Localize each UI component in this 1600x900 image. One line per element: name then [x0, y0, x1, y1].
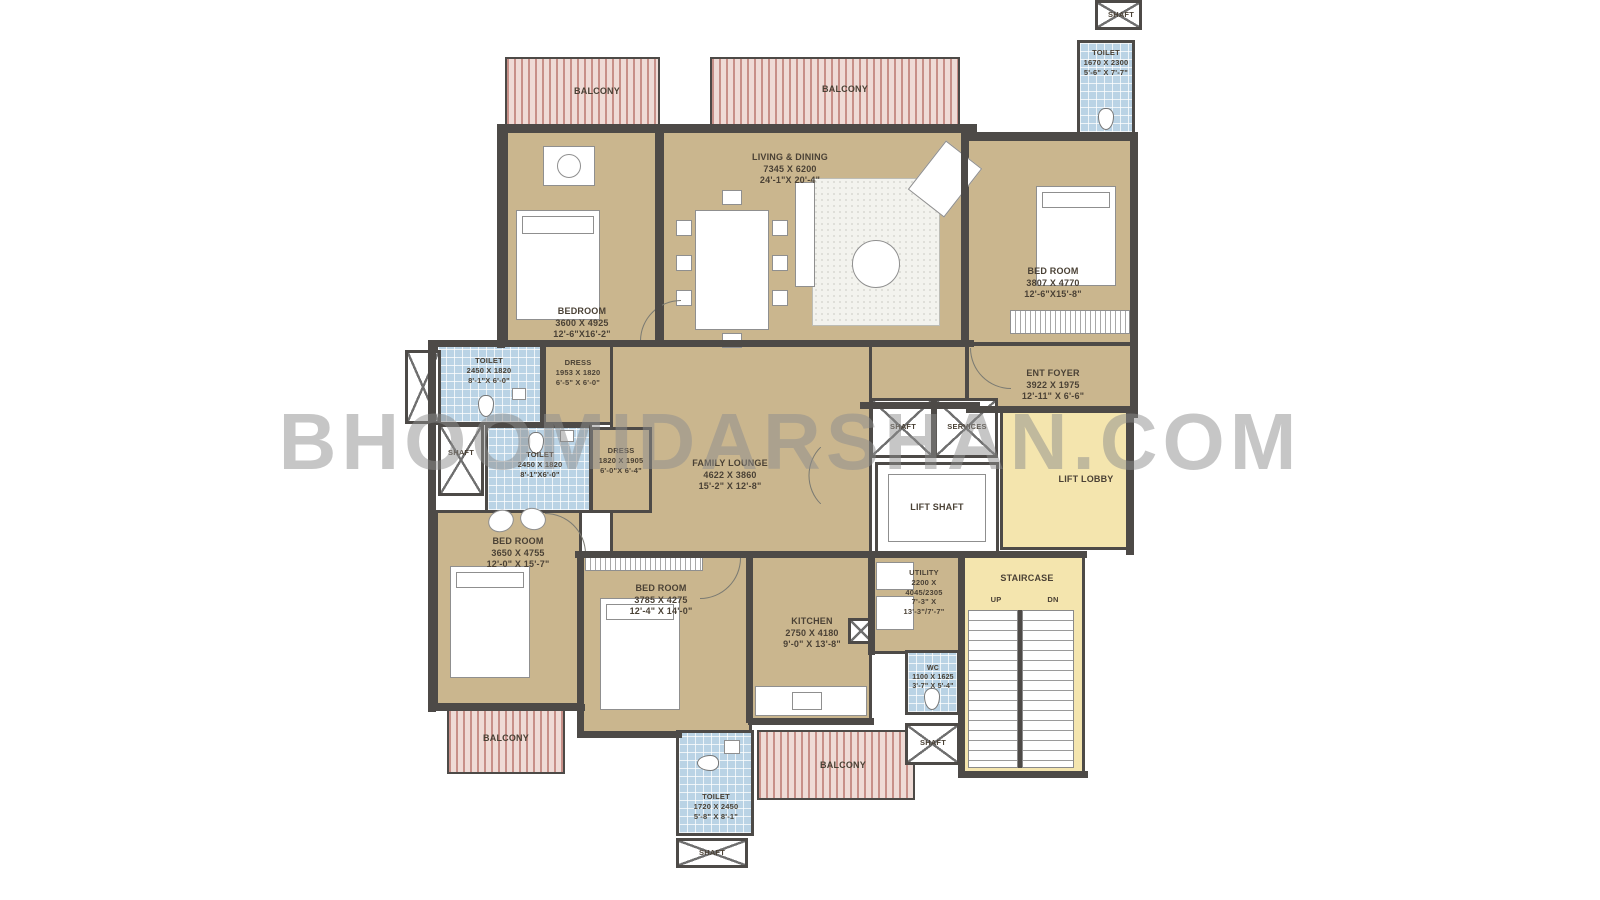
room-name: UTILITY: [903, 568, 944, 578]
services-label-text: SERVICES: [947, 422, 986, 431]
washbasin-icon: [560, 430, 574, 442]
washbasin-icon: [512, 388, 526, 400]
room-dim-ft: 15'-2" X 12'-8": [692, 481, 768, 493]
wall-segment: [655, 130, 662, 343]
room-name: BED ROOM: [1024, 266, 1081, 278]
wall-segment: [497, 124, 505, 348]
wall-segment: [961, 130, 968, 345]
room-dim-mm: 2750 X 4180: [783, 628, 841, 640]
room-dim: 2200 X: [903, 578, 944, 588]
wardrobe-icon: [585, 557, 703, 571]
wall-segment: [497, 124, 977, 132]
bedroom-bm-label: BED ROOM 3785 X 4275 12'-4" X 14'-0": [630, 583, 693, 618]
wall-segment: [428, 340, 974, 347]
toilet-l2-label: TOILET 2450 X 1820 8'-1"X6'-0": [518, 450, 563, 479]
wall-segment: [746, 555, 753, 723]
chair-icon: [772, 255, 788, 271]
room-dim-ft: 6'-0"X 6'-4": [599, 466, 644, 476]
shaft-label: SHAFT: [890, 422, 916, 432]
room-name: TOILET: [467, 356, 512, 366]
room-name: BED ROOM: [630, 583, 693, 595]
shaft-label: SHAFT: [920, 738, 946, 748]
floor-plan: BALCONY BALCONY BALCONY BALCONY TOILET 1…: [0, 0, 1600, 900]
room-dim-ft: 12'-0" X 15'-7": [487, 559, 550, 571]
room-name: FAMILY LOUNGE: [692, 458, 768, 470]
coffee-table-icon: [852, 240, 900, 288]
room-dim-mm: 2450 X 1820: [467, 366, 512, 376]
toilet-b-label: TOILET 1720 X 2450 5'-8" X 8'-1": [694, 792, 739, 821]
stair-divider: [1018, 610, 1022, 768]
room-name: TOILET: [518, 450, 563, 460]
room-name: KITCHEN: [783, 616, 841, 628]
staircase-label: STAIRCASE: [1000, 573, 1053, 585]
room-dim: 7'-3" X: [903, 597, 944, 607]
balcony-label: BALCONY: [483, 733, 529, 745]
ent-foyer-label: ENT FOYER 3922 X 1975 12'-11" X 6'-6": [1022, 368, 1084, 403]
balcony-label: BALCONY: [574, 86, 620, 98]
dress-1-label: DRESS 1953 X 1820 6'-5" X 6'-0": [556, 358, 601, 387]
wc-label: WC 1100 X 1625 3'-7" X 5'-4": [912, 664, 954, 691]
bedroom-tr-label: BED ROOM 3807 X 4770 12'-6"X15'-8": [1024, 266, 1081, 301]
staircase-label-text: STAIRCASE: [1000, 573, 1053, 583]
room-dim-mm: 7345 X 6200: [752, 164, 828, 176]
utility-label: UTILITY 2200 X 4045/2305 7'-3" X 13'-3"/…: [903, 568, 944, 617]
toilet-pot-icon: [697, 755, 719, 771]
balcony-label-text: BALCONY: [574, 86, 620, 96]
room-dim-ft: 12'-6"X16'-2": [553, 329, 610, 341]
lift-lobby-label-text: LIFT LOBBY: [1059, 474, 1114, 484]
toilet-l1-label: TOILET 2450 X 1820 8'-1"X 6'-0": [467, 356, 512, 385]
table-top-icon: [557, 154, 581, 178]
balcony-label-text: BALCONY: [820, 760, 866, 770]
stair-up-label: UP: [991, 595, 1002, 605]
services-label: SERVICES: [947, 422, 986, 432]
room-dim-mm: 3785 X 4275: [630, 595, 693, 607]
bed-pillow-icon: [522, 216, 594, 234]
shaft-label-text: SHAFT: [890, 422, 916, 431]
room-dim-ft: 8'-1"X 6'-0": [467, 376, 512, 386]
room-name: BED ROOM: [487, 536, 550, 548]
living-dining-label: LIVING & DINING 7345 X 6200 24'-1"X 20'-…: [752, 152, 828, 187]
wall-segment: [428, 340, 436, 712]
washbasin-icon: [724, 740, 740, 754]
wall-segment: [1126, 410, 1134, 555]
room-dim-mm: 1670 X 2300: [1084, 58, 1129, 68]
family-lounge-label: FAMILY LOUNGE 4622 X 3860 15'-2" X 12'-8…: [692, 458, 768, 493]
wall-segment: [577, 555, 584, 737]
room-dim-mm: 1820 X 1905: [599, 456, 644, 466]
balcony-label-text: BALCONY: [822, 84, 868, 94]
bed-pillow-icon: [1042, 192, 1110, 208]
stair-dn-text: DN: [1047, 595, 1058, 604]
room-dim-mm: 3600 X 4925: [553, 318, 610, 330]
chair-icon: [676, 220, 692, 236]
stair-dn-label: DN: [1047, 595, 1058, 605]
room-dim-mm: 3650 X 4755: [487, 548, 550, 560]
room-dim-mm: 4622 X 3860: [692, 470, 768, 482]
balcony-label: BALCONY: [820, 760, 866, 772]
dress-2-label: DRESS 1820 X 1905 6'-0"X 6'-4": [599, 446, 644, 475]
balcony-label-text: BALCONY: [483, 733, 529, 743]
room-name: TOILET: [694, 792, 739, 802]
lift-shaft-label: LIFT SHAFT: [910, 502, 964, 514]
room-name: DRESS: [556, 358, 601, 368]
room-dim-mm: 3922 X 1975: [1022, 380, 1084, 392]
room-dim: 13'-3"/7'-7": [903, 607, 944, 617]
room-dim-ft: 12'-11" X 6'-6": [1022, 391, 1084, 403]
room-dim-ft: 12'-6"X15'-8": [1024, 289, 1081, 301]
room-dim: 4045/2305: [903, 588, 944, 598]
shaft-label: SHAFT: [699, 848, 725, 858]
toilet-tr-label: TOILET 1670 X 2300 5'-6" X 7'-7": [1084, 48, 1129, 77]
shaft-label-text: SHAFT: [448, 448, 474, 457]
kitchen-label: KITCHEN 2750 X 4180 9'-0" X 13'-8": [783, 616, 841, 651]
shaft-label-text: SHAFT: [699, 848, 725, 857]
bedroom-bl-label: BED ROOM 3650 X 4755 12'-0" X 15'-7": [487, 536, 550, 571]
room-dim-mm: 1100 X 1625: [912, 673, 954, 682]
wall-segment: [431, 704, 585, 711]
stair-up-text: UP: [991, 595, 1002, 604]
shaft-left-lower-box: [438, 424, 484, 496]
bedroom-tl-label: BEDROOM 3600 X 4925 12'-6"X16'-2": [553, 306, 610, 341]
room-name: BEDROOM: [553, 306, 610, 318]
wall-segment: [868, 555, 875, 655]
stair-flight-right-icon: [1022, 610, 1074, 768]
chair-icon: [676, 255, 692, 271]
shaft-label: SHAFT: [1108, 10, 1134, 20]
room-dim-ft: 24'-1"X 20'-4": [752, 175, 828, 187]
wall-segment: [860, 402, 980, 409]
room-name: ENT FOYER: [1022, 368, 1084, 380]
room-dim-mm: 1953 X 1820: [556, 368, 601, 378]
room-dim-mm: 2450 X 1820: [518, 460, 563, 470]
room-dim-ft: 6'-5" X 6'-0": [556, 378, 601, 388]
room-dim-ft: 3'-7" X 5'-4": [912, 682, 954, 691]
wall-segment: [958, 771, 1088, 778]
room-name: DRESS: [599, 446, 644, 456]
wall-segment: [748, 718, 874, 725]
chair-icon: [772, 290, 788, 306]
room-dim-ft: 5'-6" X 7'-7": [1084, 68, 1129, 78]
room-name: WC: [912, 664, 954, 673]
room-name: TOILET: [1084, 48, 1129, 58]
kitchen-sink-icon: [792, 692, 822, 710]
room-dim-ft: 8'-1"X6'-0": [518, 470, 563, 480]
chair-icon: [722, 190, 742, 205]
room-name: LIVING & DINING: [752, 152, 828, 164]
balcony-label: BALCONY: [822, 84, 868, 96]
room-dim-ft: 5'-8" X 8'-1": [694, 812, 739, 822]
sofa-icon: [795, 182, 815, 287]
wardrobe-icon: [1010, 310, 1130, 334]
shaft-label-text: SHAFT: [920, 738, 946, 747]
wall-segment: [958, 555, 965, 777]
dining-table-icon: [695, 210, 769, 330]
wall-segment: [966, 132, 1138, 140]
room-dim-ft: 9'-0" X 13'-8": [783, 639, 841, 651]
stair-flight-left-icon: [968, 610, 1018, 768]
shaft-label: SHAFT: [448, 448, 474, 458]
wall-segment: [966, 406, 1136, 413]
room-dim-ft: 12'-4" X 14'-0": [630, 606, 693, 618]
wall-segment: [575, 551, 1087, 558]
wall-segment: [1130, 132, 1138, 418]
chair-icon: [772, 220, 788, 236]
shaft-label-text: SHAFT: [1108, 10, 1134, 19]
bed-pillow-icon: [456, 572, 524, 588]
wall-segment: [577, 731, 682, 738]
lift-lobby-label: LIFT LOBBY: [1059, 474, 1114, 486]
room-dim-mm: 1720 X 2450: [694, 802, 739, 812]
room-dim-mm: 3807 X 4770: [1024, 278, 1081, 290]
lift-shaft-label-text: LIFT SHAFT: [910, 502, 964, 512]
